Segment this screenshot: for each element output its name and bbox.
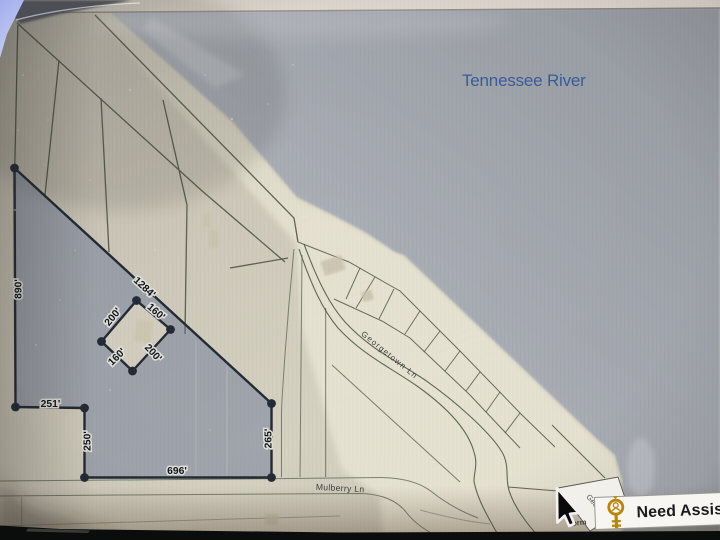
svg-text:Need Assista: Need Assista (636, 501, 720, 522)
